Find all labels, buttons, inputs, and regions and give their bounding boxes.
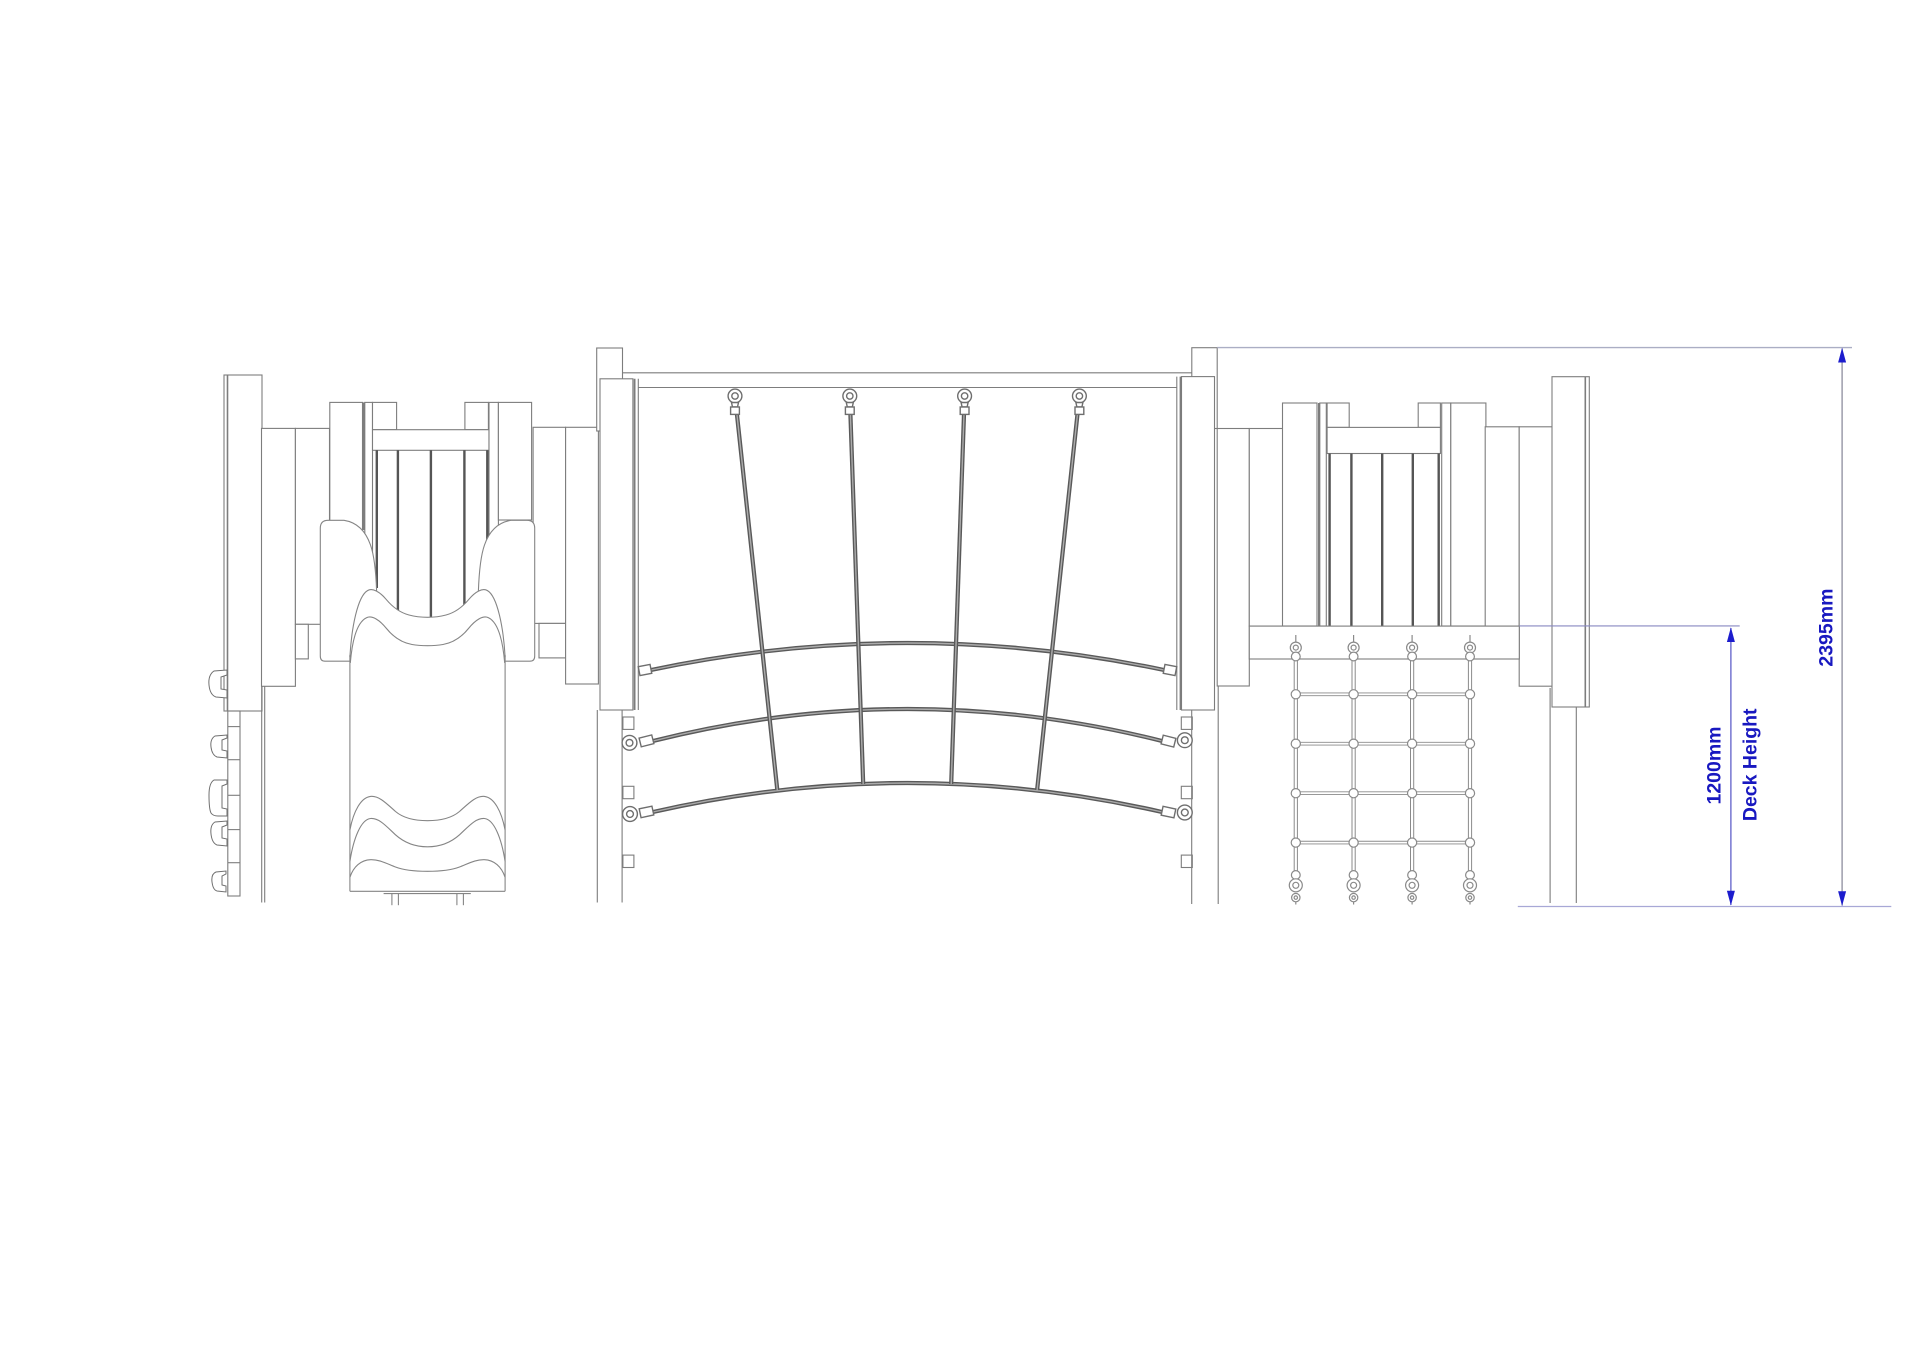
svg-text:Deck Height: Deck Height — [1739, 708, 1761, 821]
svg-text:2395mm: 2395mm — [1816, 589, 1838, 667]
svg-text:1200mm: 1200mm — [1704, 726, 1726, 804]
